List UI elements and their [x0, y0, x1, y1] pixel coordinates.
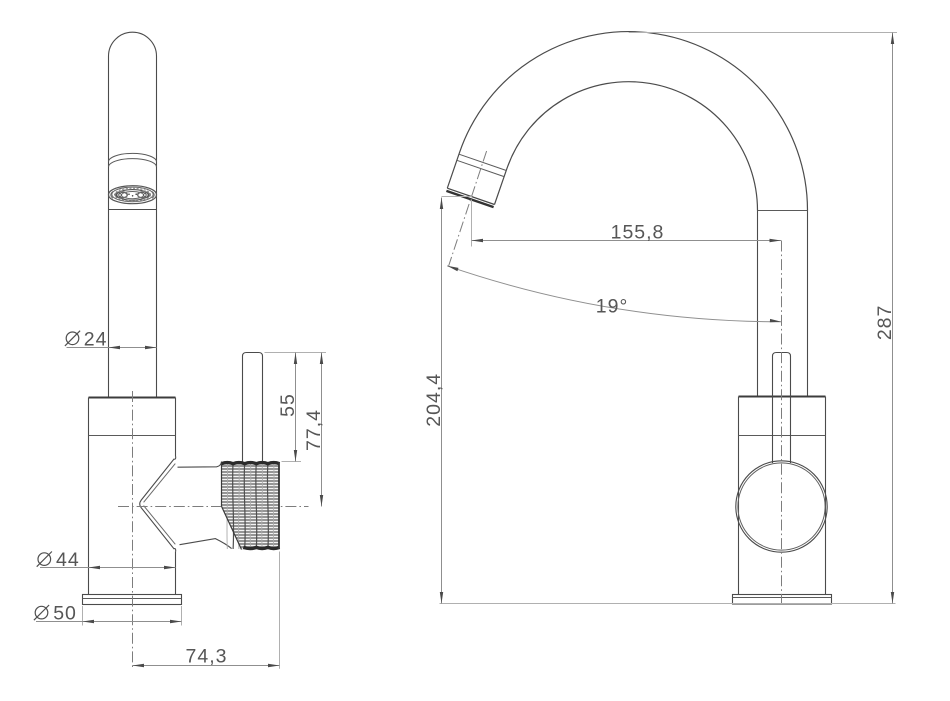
svg-text:50: 50 [53, 603, 77, 625]
svg-text:77,4: 77,4 [303, 409, 325, 451]
svg-text:155,8: 155,8 [611, 222, 665, 244]
svg-text:19°: 19° [596, 296, 629, 318]
svg-text:55: 55 [277, 393, 299, 417]
svg-text:44: 44 [56, 549, 80, 571]
svg-text:24: 24 [84, 328, 108, 350]
svg-text:74,3: 74,3 [186, 646, 228, 668]
svg-text:204,4: 204,4 [423, 373, 445, 427]
svg-text:287: 287 [874, 305, 896, 341]
